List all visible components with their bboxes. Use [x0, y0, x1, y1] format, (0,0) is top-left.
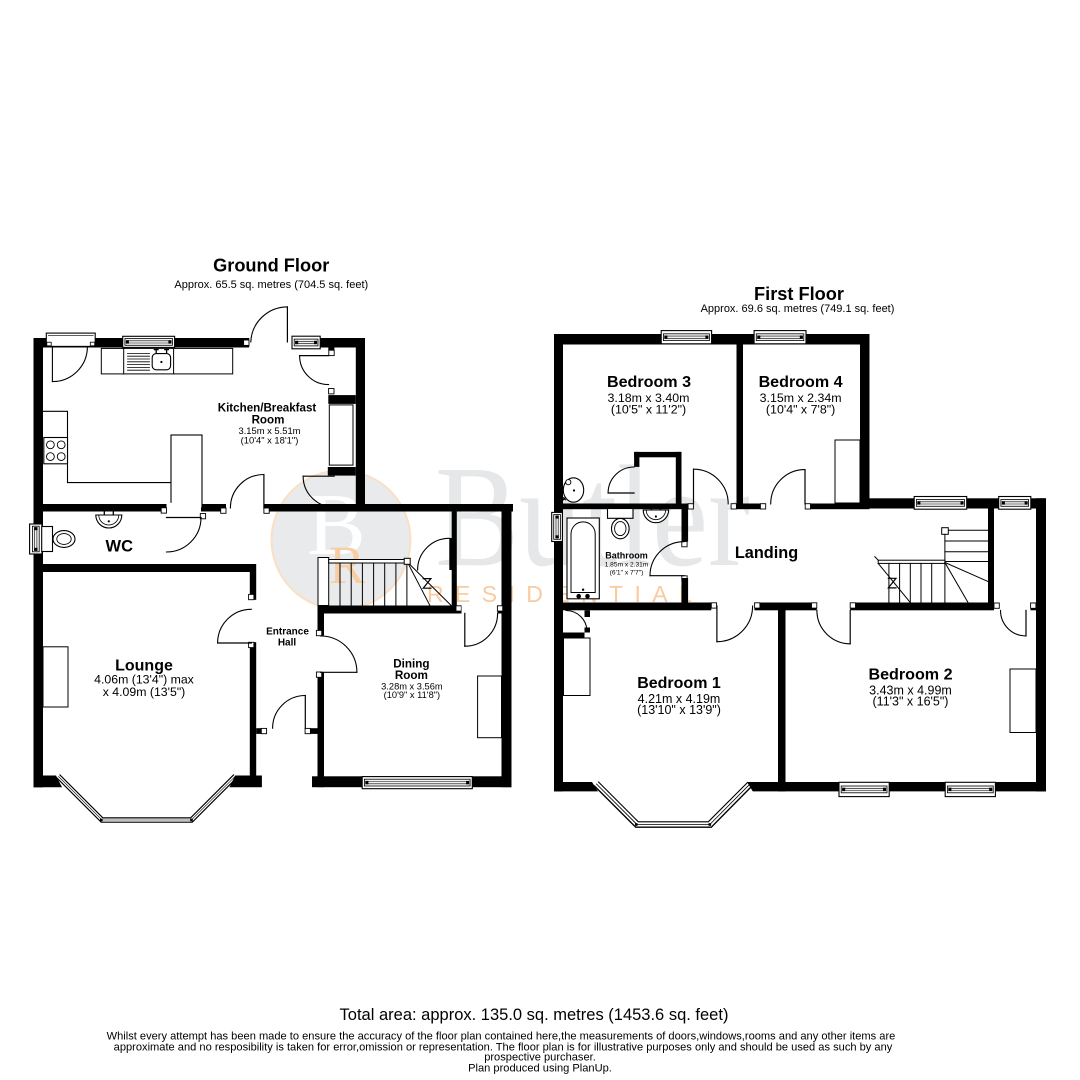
svg-text:Bathroom: Bathroom	[605, 550, 648, 560]
svg-text:x 4.09m (13'5"): x 4.09m (13'5")	[103, 685, 186, 699]
svg-text:Bedroom 4: Bedroom 4	[759, 373, 843, 391]
svg-text:(10'4" x 7'8"): (10'4" x 7'8")	[766, 402, 835, 416]
svg-text:Plan produced using PlanUp.: Plan produced using PlanUp.	[468, 1063, 612, 1075]
svg-text:(11'3" x 16'5"): (11'3" x 16'5")	[873, 694, 949, 708]
svg-text:Approx. 69.6 sq. metres (749.1: Approx. 69.6 sq. metres (749.1 sq. feet)	[701, 303, 895, 315]
svg-text:(10'9" x 11'8"): (10'9" x 11'8")	[384, 690, 441, 700]
svg-text:Bedroom 2: Bedroom 2	[868, 666, 952, 684]
svg-text:Total area: approx. 135.0 sq.: Total area: approx. 135.0 sq. metres (14…	[340, 1006, 729, 1024]
svg-text:Approx. 65.5 sq. metres (704.5: Approx. 65.5 sq. metres (704.5 sq. feet)	[174, 279, 368, 291]
svg-text:R: R	[329, 535, 365, 595]
svg-text:1.85m x 2.31m: 1.85m x 2.31m	[605, 562, 649, 569]
svg-text:Bedroom 3: Bedroom 3	[607, 373, 691, 391]
svg-text:Landing: Landing	[735, 544, 798, 562]
svg-text:Room: Room	[395, 669, 428, 682]
svg-text:(6'1" x 7'7"): (6'1" x 7'7")	[610, 570, 644, 577]
svg-text:Hall: Hall	[278, 637, 297, 648]
svg-text:(10'4" x 18'1"): (10'4" x 18'1")	[241, 435, 299, 446]
svg-text:Bedroom 1: Bedroom 1	[637, 675, 721, 692]
svg-text:Ground Floor: Ground Floor	[213, 256, 329, 276]
svg-text:(13'10" x 13'9"): (13'10" x 13'9")	[637, 703, 721, 717]
svg-text:Entrance: Entrance	[266, 626, 309, 637]
svg-text:First Floor: First Floor	[754, 284, 844, 304]
svg-text:WC: WC	[106, 538, 134, 556]
svg-text:(10'5" x 11'2"): (10'5" x 11'2")	[611, 402, 686, 416]
